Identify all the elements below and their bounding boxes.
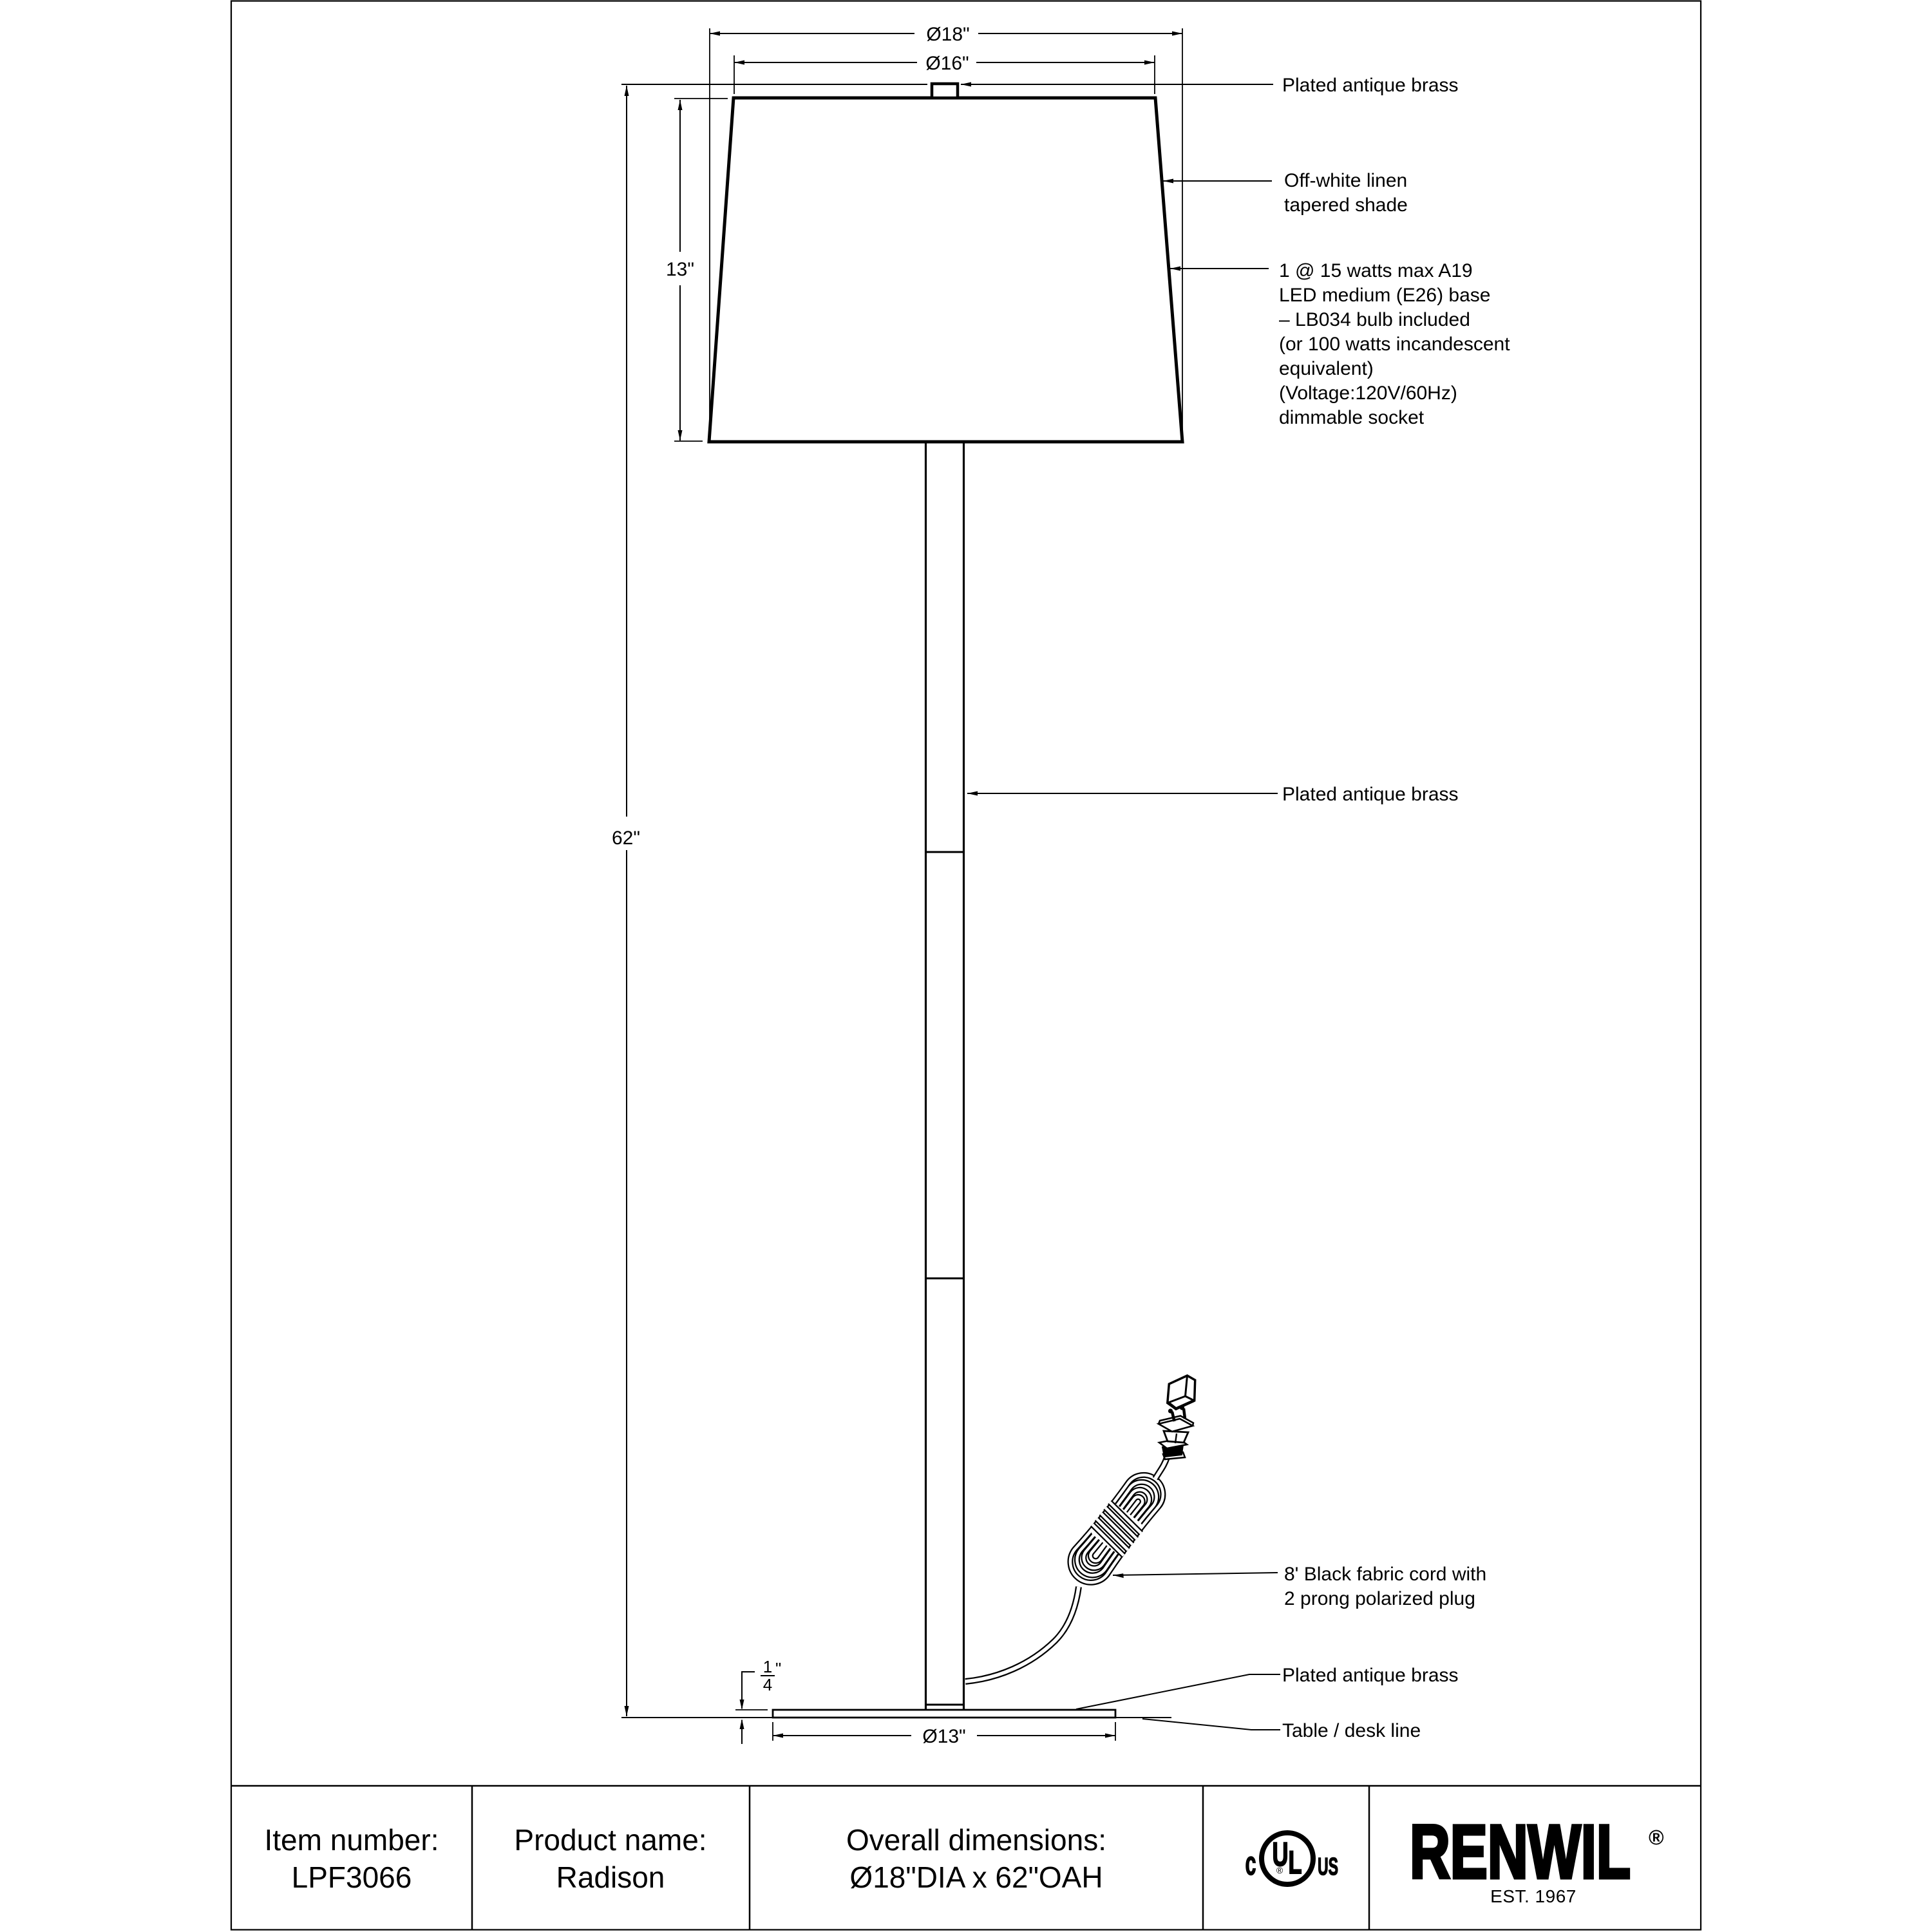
svg-text:4: 4 [763,1675,772,1694]
svg-text:tapered shade: tapered shade [1284,194,1408,216]
svg-text:": " [775,1659,781,1678]
svg-text:62": 62" [612,828,640,849]
svg-text:Off-white linen: Off-white linen [1284,170,1407,191]
svg-text:Overall dimensions:: Overall dimensions: [846,1823,1106,1857]
svg-text:Ø13": Ø13" [922,1726,965,1747]
svg-text:equivalent): equivalent) [1279,358,1374,379]
svg-text:®: ® [1649,1826,1664,1849]
svg-text:EST. 1967: EST. 1967 [1490,1886,1577,1906]
svg-text:Ø18": Ø18" [926,24,969,45]
svg-text:– LB034 bulb included: – LB034 bulb included [1279,309,1470,330]
svg-text:Plated antique brass: Plated antique brass [1282,784,1459,805]
svg-text:Radison: Radison [556,1861,665,1894]
svg-text:L: L [1289,1844,1302,1880]
svg-text:1 @ 15 watts max A19: 1 @ 15 watts max A19 [1279,260,1473,281]
svg-text:dimmable socket: dimmable socket [1279,407,1425,428]
svg-text:Ø18"DIA x 62"OAH: Ø18"DIA x 62"OAH [849,1861,1103,1894]
svg-text:Item number:: Item number: [265,1823,439,1857]
svg-text:®: ® [1276,1865,1283,1875]
svg-text:2 prong polarized plug: 2 prong polarized plug [1284,1588,1475,1609]
svg-text:Plated antique brass: Plated antique brass [1282,1665,1459,1686]
svg-text:Plated antique brass: Plated antique brass [1282,75,1459,96]
svg-text:Product name:: Product name: [514,1823,706,1857]
svg-text:Table / desk line: Table / desk line [1282,1720,1421,1741]
svg-text:LPF3066: LPF3066 [292,1861,412,1894]
svg-text:RENWIL: RENWIL [1410,1810,1631,1895]
svg-text:1: 1 [763,1657,772,1676]
svg-text:(or 100 watts incandescent: (or 100 watts incandescent [1279,334,1510,355]
svg-text:8' Black fabric cord with: 8' Black fabric cord with [1284,1564,1486,1585]
svg-text:LED medium (E26) base: LED medium (E26) base [1279,285,1490,306]
svg-text:13": 13" [666,259,694,280]
svg-text:US: US [1318,1853,1338,1880]
svg-text:c: c [1245,1845,1256,1882]
svg-text:Ø16": Ø16" [925,53,969,74]
svg-text:(Voltage:120V/60Hz): (Voltage:120V/60Hz) [1279,383,1457,404]
